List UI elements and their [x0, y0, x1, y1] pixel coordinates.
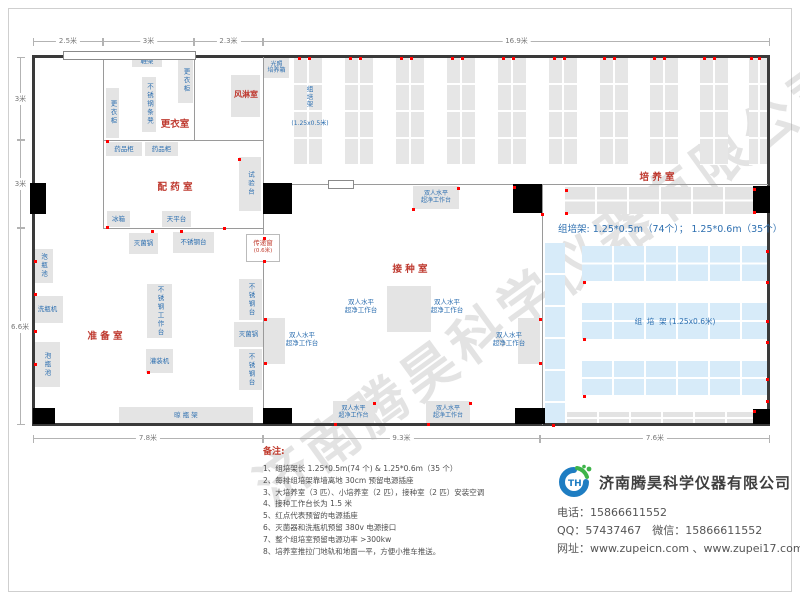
equipment-box: 晾 瓶 架: [119, 407, 253, 424]
note-item: 1、组培架长 1.25*0.5m(74 个) & 1.25*0.6m（35 个）: [263, 463, 548, 475]
culture-rack: [345, 58, 373, 165]
power-socket-dot: [541, 213, 544, 216]
power-socket-dot: [264, 362, 267, 365]
equipment-box: 天平台: [162, 211, 191, 227]
power-socket-dot: [34, 293, 37, 296]
door-opening: [30, 183, 46, 214]
dimension-bottom: 9.3米: [263, 438, 540, 439]
power-socket-dot: [180, 230, 183, 233]
equipment-box: 更衣柜: [106, 88, 119, 138]
power-socket-dot: [410, 57, 413, 60]
door-opening: [33, 408, 55, 424]
dimension-top: 3米: [103, 41, 194, 42]
equipment-box: 不锈钢台: [173, 232, 214, 253]
power-socket-dot: [461, 57, 464, 60]
power-socket-dot: [583, 281, 586, 284]
power-socket-dot: [147, 371, 150, 374]
door-opening: [513, 184, 542, 213]
power-socket-dot: [349, 57, 352, 60]
window-symbol: [328, 180, 354, 189]
power-socket-dot: [151, 230, 154, 233]
door-opening: [263, 408, 292, 424]
culture-rack: [447, 58, 475, 165]
power-socket-dot: [613, 57, 616, 60]
plan-label: (1.25x0.5米): [285, 118, 335, 127]
room-label: 接 种 室: [379, 261, 441, 275]
outer-wall: [767, 55, 770, 426]
power-socket-dot: [703, 57, 706, 60]
power-socket-dot: [565, 212, 568, 215]
notes-list: 1、组培架长 1.25*0.5m(74 个) & 1.25*0.6m（35 个）…: [263, 463, 548, 557]
power-socket-dot: [663, 57, 666, 60]
equipment-box: 光照 培养箱: [264, 58, 289, 78]
dimension-top: 16.9米: [263, 41, 770, 42]
dimension-left: 3米: [20, 57, 21, 140]
power-socket-dot: [753, 188, 756, 191]
plan-label: 双人水平 超净工作台: [428, 299, 466, 314]
equipment-box: [387, 286, 409, 332]
power-socket-dot: [106, 140, 109, 143]
power-socket-dot: [565, 189, 568, 192]
power-socket-dot: [753, 410, 756, 413]
equipment-box: [263, 318, 285, 364]
power-socket-dot: [713, 57, 716, 60]
power-socket-dot: [106, 226, 109, 229]
dimension-top: 2.3米: [194, 41, 263, 42]
dimension-bottom: 7.6米: [540, 438, 770, 439]
power-socket-dot: [603, 57, 606, 60]
power-socket-dot: [539, 362, 542, 365]
company-qq-wechat: QQ：57437467 微信：15866611552: [557, 522, 762, 538]
room-label: 培 养 室: [626, 169, 688, 183]
power-socket-dot: [34, 330, 37, 333]
power-socket-dot: [502, 57, 505, 60]
equipment-box: 冰箱: [107, 211, 130, 227]
power-socket-dot: [552, 424, 555, 427]
equipment-box: 泡瓶池: [33, 342, 60, 387]
note-item: 4、接种工作台长为 1.5 米: [263, 498, 548, 510]
interior-wall: [103, 57, 104, 228]
culture-rack: [549, 58, 577, 165]
company-phone: 电话：15866611552: [557, 504, 667, 520]
equipment-box: 灭菌锅: [129, 233, 158, 254]
plan-label: 双人水平 超净工作台: [342, 299, 380, 314]
power-socket-dot: [766, 341, 769, 344]
plan-label: 组 培 架: [302, 86, 318, 109]
equipment-box: 试验台: [239, 157, 261, 211]
room-label: 更衣室: [152, 116, 198, 130]
power-socket-dot: [263, 237, 266, 240]
power-socket-dot: [766, 250, 769, 253]
door-opening: [263, 183, 292, 214]
power-socket-dot: [758, 57, 761, 60]
power-socket-dot: [563, 57, 566, 60]
dimension-left: 6.6米: [20, 228, 21, 425]
power-socket-dot: [34, 260, 37, 263]
window-symbol: [63, 51, 196, 60]
culture-rack-band: [565, 187, 753, 214]
power-socket-dot: [263, 260, 266, 263]
drawing-canvas: 济南腾昊科学仪器有限公司 鞋架更衣柜不锈钢条凳更衣柜光照 培养箱药品柜药品柜试验…: [0, 0, 800, 600]
svg-text:TH: TH: [568, 479, 582, 489]
power-socket-dot: [766, 281, 769, 284]
culture-rack: [600, 58, 628, 165]
notes-title: 备注:: [263, 444, 548, 457]
power-socket-dot: [513, 186, 516, 189]
note-item: 5、红点代表预留的电源插座: [263, 510, 548, 522]
door-opening: [515, 408, 545, 424]
equipment-box: 双人水平 超净工作台: [426, 401, 470, 424]
plan-label: 双人水平 超净工作台: [490, 332, 528, 347]
power-socket-dot: [553, 57, 556, 60]
interior-wall: [542, 185, 543, 425]
note-item: 2、每排组培架靠墙离地 30cm 预留电源插座: [263, 475, 548, 487]
culture-rack: [396, 58, 424, 165]
power-socket-dot: [238, 158, 241, 161]
equipment-box: 不锈钢台: [239, 279, 262, 320]
room-label: 配 药 室: [144, 179, 206, 193]
equipment-box: 药品柜: [106, 142, 142, 156]
power-socket-dot: [539, 318, 542, 321]
plan-label: 双人水平 超净工作台: [283, 332, 321, 347]
power-socket-dot: [334, 423, 337, 426]
power-socket-dot: [583, 338, 586, 341]
power-socket-dot: [457, 187, 460, 190]
dimension-top: 2.5米: [33, 41, 103, 42]
equipment-box: 双人水平 超净工作台: [333, 401, 374, 424]
small-culture-rack-band: [582, 246, 767, 281]
small-culture-rack-band: [582, 361, 767, 395]
note-item: 8、培养室推拉门地轨和地面一平，方便小推车推送。: [263, 546, 548, 558]
equipment-box: 洗瓶机: [32, 296, 63, 323]
room-label: 准 备 室: [74, 328, 136, 342]
power-socket-dot: [264, 318, 267, 321]
power-socket-dot: [766, 400, 769, 403]
company-logo-icon: TH: [555, 464, 593, 502]
power-socket-dot: [400, 57, 403, 60]
equipment-box: 灌装机: [146, 349, 173, 373]
equipment-box: 灭菌锅: [234, 322, 263, 347]
equipment-box: 不锈钢工作台: [147, 284, 172, 338]
power-socket-dot: [34, 363, 37, 366]
culture-rack: [700, 58, 728, 165]
outer-wall: [33, 423, 770, 426]
power-socket-dot: [766, 378, 769, 381]
company-name: 济南腾昊科学仪器有限公司: [599, 472, 791, 493]
equipment-box: 泡瓶池: [33, 249, 53, 283]
equipment-box: 更衣柜: [178, 58, 193, 103]
room-label: 风淋室: [227, 89, 265, 100]
power-socket-dot: [373, 402, 376, 405]
notes-panel: 备注: 1、组培架长 1.25*0.5m(74 个) & 1.25*0.6m（3…: [263, 444, 548, 557]
power-socket-dot: [583, 395, 586, 398]
power-socket-dot: [512, 57, 515, 60]
power-socket-dot: [469, 402, 472, 405]
equipment-box: 双人水平 超净工作台: [413, 186, 459, 209]
power-socket-dot: [298, 57, 301, 60]
power-socket-dot: [766, 320, 769, 323]
interior-wall: [103, 228, 263, 229]
interior-wall: [103, 140, 263, 141]
note-item: 6、灭菌器和洗瓶机预留 380v 电源接口: [263, 522, 548, 534]
note-item: 3、大培养室（3 匹）、小培养室（2 匹），接种室（2 匹）安装空调: [263, 487, 548, 499]
equipment-box: 不锈钢台: [239, 349, 262, 390]
power-socket-dot: [359, 57, 362, 60]
dimension-bottom: 7.8米: [33, 438, 263, 439]
power-socket-dot: [412, 208, 415, 211]
company-website: 网址：www.zupeicn.com 、www.zupei17.com: [557, 540, 800, 556]
plan-label: 组培架: 1.25*0.5m（74个）； 1.25*0.6m（35个）: [558, 221, 770, 235]
power-socket-dot: [308, 57, 311, 60]
culture-rack: [749, 58, 769, 165]
culture-rack: [650, 58, 678, 165]
small-culture-rack: [545, 243, 565, 423]
plan-label: 组 培 架 (1.25x0.6米): [600, 316, 750, 327]
power-socket-dot: [653, 57, 656, 60]
outer-wall: [32, 55, 35, 426]
power-socket-dot: [427, 423, 430, 426]
equipment-box: 药品柜: [145, 142, 178, 156]
culture-rack: [294, 58, 322, 165]
note-item: 7、整个组培室预留电源功率 >300kw: [263, 534, 548, 546]
power-socket-dot: [750, 57, 753, 60]
power-socket-dot: [223, 227, 226, 230]
dimension-left: 3米: [20, 140, 21, 228]
power-socket-dot: [451, 57, 454, 60]
culture-rack: [498, 58, 526, 165]
power-socket-dot: [753, 211, 756, 214]
